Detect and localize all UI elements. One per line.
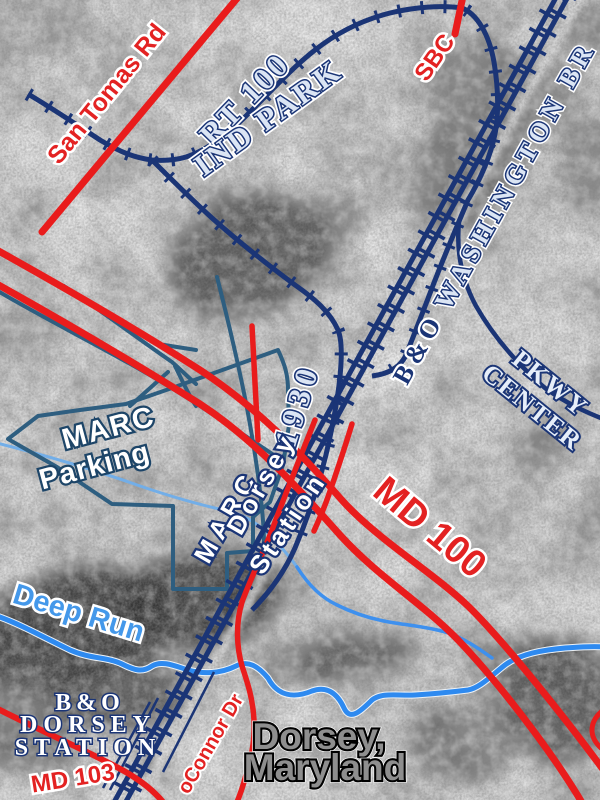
- svg-text:STATION: STATION: [15, 735, 161, 761]
- svg-text:Maryland: Maryland: [244, 747, 406, 788]
